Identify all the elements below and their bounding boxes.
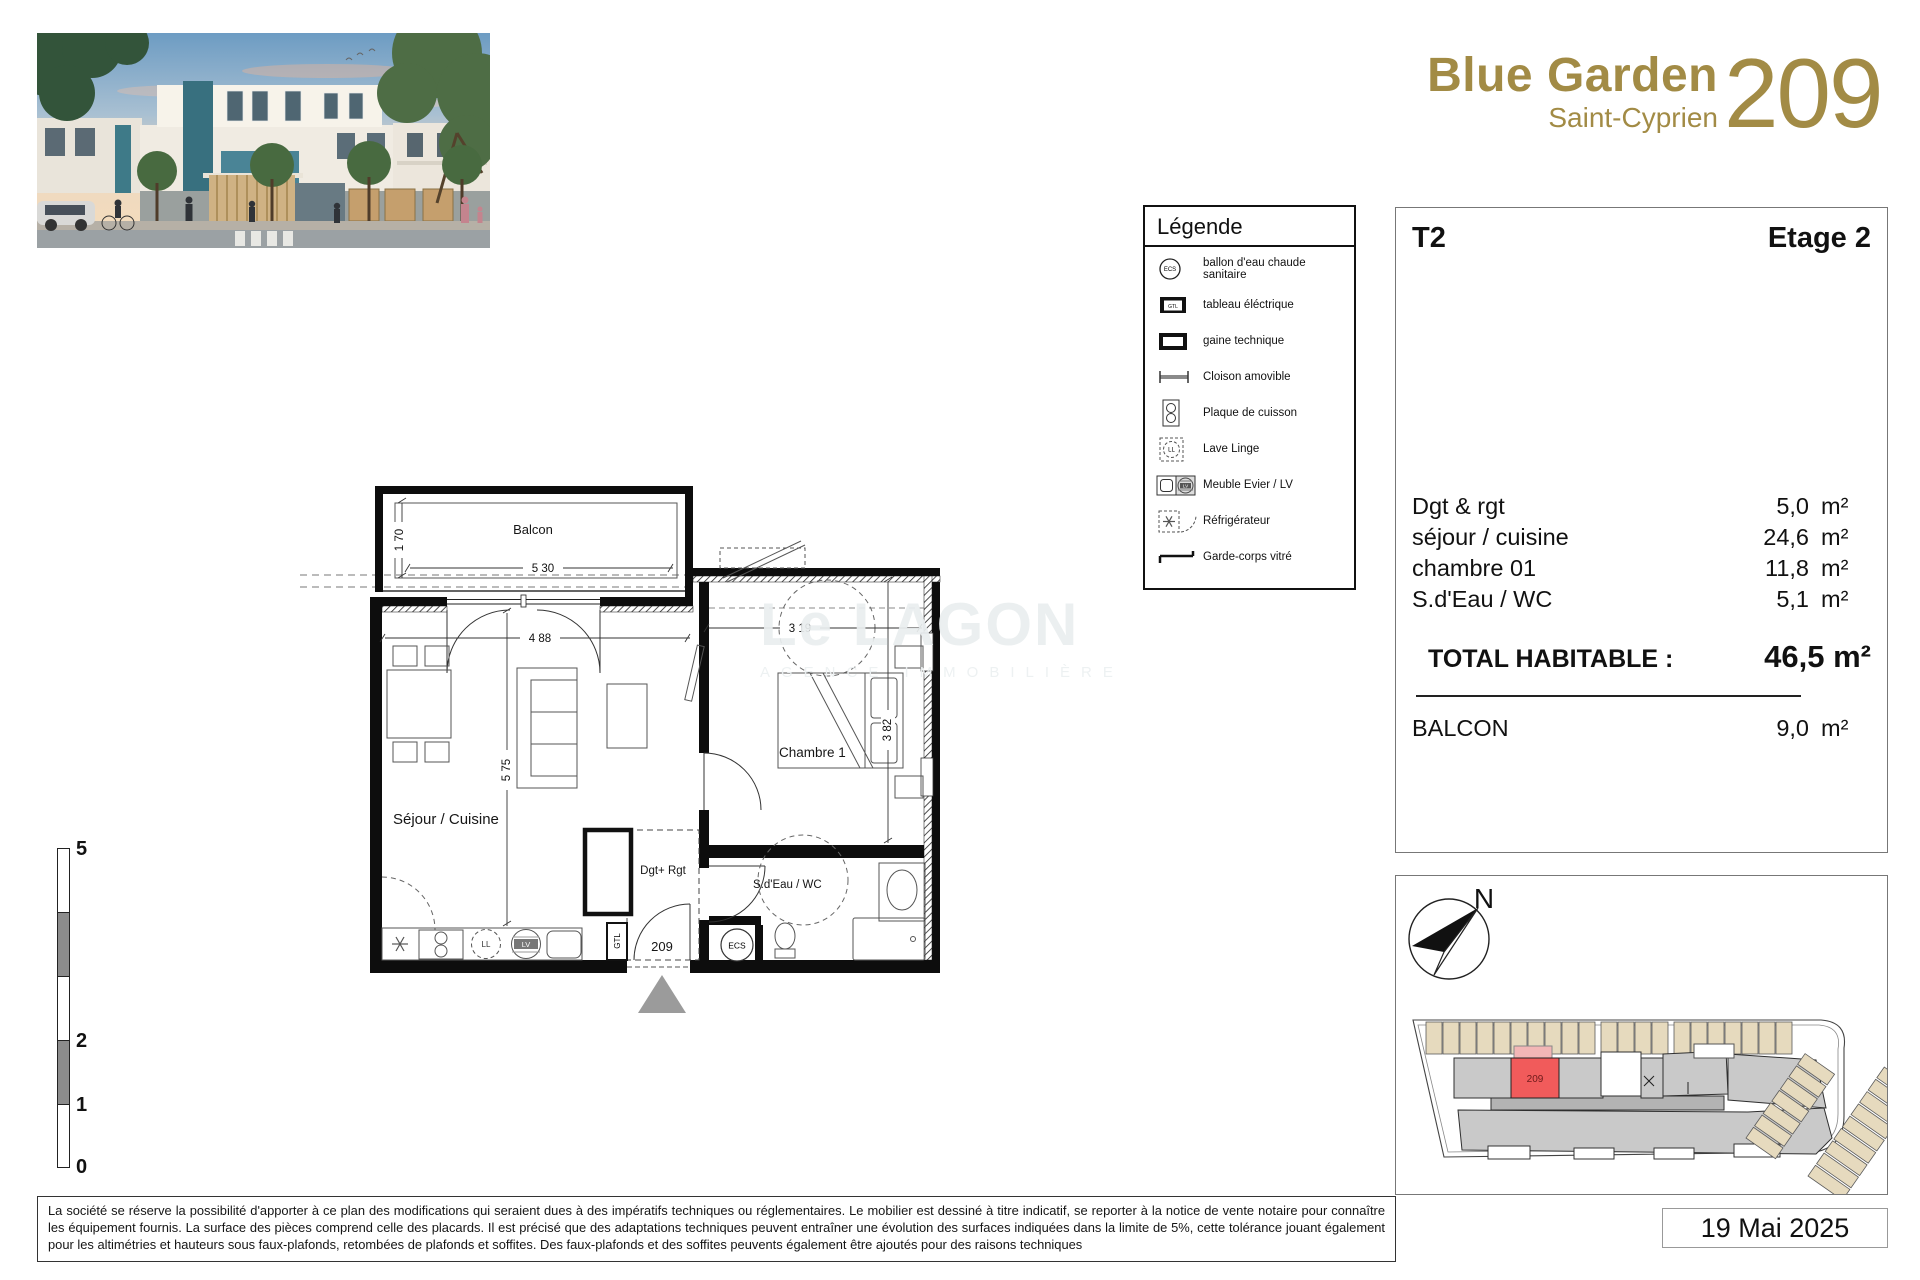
technical-duct-icon: [1155, 327, 1203, 355]
svg-text:LL: LL: [482, 940, 491, 949]
svg-text:ECS: ECS: [1164, 267, 1176, 273]
walls: [370, 568, 940, 973]
balcony-area: [375, 486, 693, 610]
adjacent-unit: [1514, 1046, 1552, 1059]
legend-item: gaine technique: [1155, 324, 1350, 358]
water-heater: ECS: [721, 929, 753, 961]
gtl-box: GTL: [607, 923, 627, 960]
scale-label: 0: [76, 1156, 96, 1179]
legend-item: ECS ballon d'eau chaude sanitaire: [1155, 252, 1350, 286]
dimension-lines: [380, 498, 922, 926]
parking-row: [1426, 1022, 1792, 1054]
room-area-row: S.d'Eau / WC 5,1 m²: [1412, 584, 1871, 615]
bedroom-label: Chambre 1: [779, 745, 846, 760]
legend: Légende ECS ballon d'eau chaude sanitair…: [1143, 205, 1356, 590]
unit-type: T2: [1412, 222, 1446, 255]
floor-plan: LL LV GTL ECS: [295, 478, 955, 1038]
scale-bar: 5 2 1 0: [57, 848, 97, 1178]
furniture: [382, 645, 925, 960]
legend-item: GTL tableau éléctrique: [1155, 288, 1350, 322]
entrance-arrow: [638, 975, 686, 1013]
water-heater-icon: ECS: [1155, 255, 1203, 283]
electrical-panel-icon: GTL: [1155, 291, 1203, 319]
sink-dishwasher-icon: LV: [1155, 471, 1203, 499]
scale-label: 5: [76, 838, 96, 861]
svg-text:LV: LV: [522, 940, 531, 949]
project-location: Saint-Cyprien: [1000, 104, 1718, 132]
svg-text:1 70: 1 70: [394, 529, 406, 551]
cooktop-icon: [1155, 398, 1203, 428]
svg-text:5 75: 5 75: [501, 759, 513, 781]
movable-partition-icon: [1155, 363, 1203, 391]
total-area-row: TOTAL HABITABLE : 46,5 m²: [1412, 639, 1871, 675]
balcony-area-row: BALCON 9,0 m²: [1412, 713, 1871, 744]
unit-info-panel: T2 Etage 2 Dgt & rgt 5,0 m² séjour / cui…: [1395, 207, 1888, 853]
svg-text:3 19: 3 19: [789, 623, 811, 635]
highlighted-unit: 209: [1511, 1058, 1559, 1098]
svg-text:4 88: 4 88: [529, 633, 551, 645]
svg-text:3 82: 3 82: [882, 719, 894, 741]
dishwasher-symbol: LV: [512, 930, 541, 959]
glass-railing-icon: [1155, 543, 1203, 571]
legend-item: Plaque de cuisson: [1155, 396, 1350, 430]
balcony-label: Balcon: [513, 522, 553, 537]
room-area-row: chambre 01 11,8 m²: [1412, 553, 1871, 584]
washing-machine-icon: LL: [1155, 435, 1203, 463]
legend-title: Légende: [1145, 207, 1354, 245]
svg-text:GTL: GTL: [613, 933, 622, 949]
legend-item: Cloison amovible: [1155, 360, 1350, 394]
svg-text:5 30: 5 30: [532, 563, 554, 575]
legend-item: Réfrigérateur: [1155, 504, 1350, 538]
living-label: Séjour / Cuisine: [393, 811, 499, 828]
bathroom-label: S.d'Eau / WC: [753, 879, 822, 891]
plan-sheet: Blue Garden Saint-Cyprien 209 Légende EC…: [0, 0, 1920, 1280]
compass-icon: N: [1409, 883, 1494, 979]
scale-label: 2: [76, 1030, 96, 1053]
svg-text:LL: LL: [1168, 448, 1175, 454]
fridge-symbol: [392, 937, 408, 951]
storage-label: Dgt+ Rgt: [640, 865, 687, 877]
plan-date: 19 Mai 2025: [1662, 1208, 1888, 1248]
room-area-row: séjour / cuisine 24,6 m²: [1412, 522, 1871, 553]
total-divider: [1416, 695, 1801, 697]
refrigerator-icon: [1155, 507, 1203, 535]
svg-text:GTL: GTL: [1168, 304, 1178, 310]
legend-item: LV Meuble Evier / LV: [1155, 468, 1350, 502]
room-area-row: Dgt & rgt 5,0 m²: [1412, 491, 1871, 522]
unit-number: 209: [1724, 44, 1914, 142]
svg-text:ECS: ECS: [728, 941, 746, 951]
svg-text:209: 209: [1527, 1074, 1544, 1085]
floor-label: Etage 2: [1768, 222, 1871, 255]
project-photo: [37, 33, 490, 248]
closet: [585, 830, 631, 914]
legend-item: Garde-corps vitré: [1155, 540, 1350, 574]
disclaimer-text: La société se réserve la possibilité d'a…: [37, 1196, 1396, 1262]
header: Blue Garden Saint-Cyprien: [1000, 52, 1718, 132]
site-plan: N: [1395, 875, 1888, 1195]
scale-label: 1: [76, 1094, 96, 1117]
project-name: Blue Garden: [1000, 52, 1718, 100]
entry-unit-number: 209: [651, 939, 673, 954]
legend-item: LL Lave Linge: [1155, 432, 1350, 466]
